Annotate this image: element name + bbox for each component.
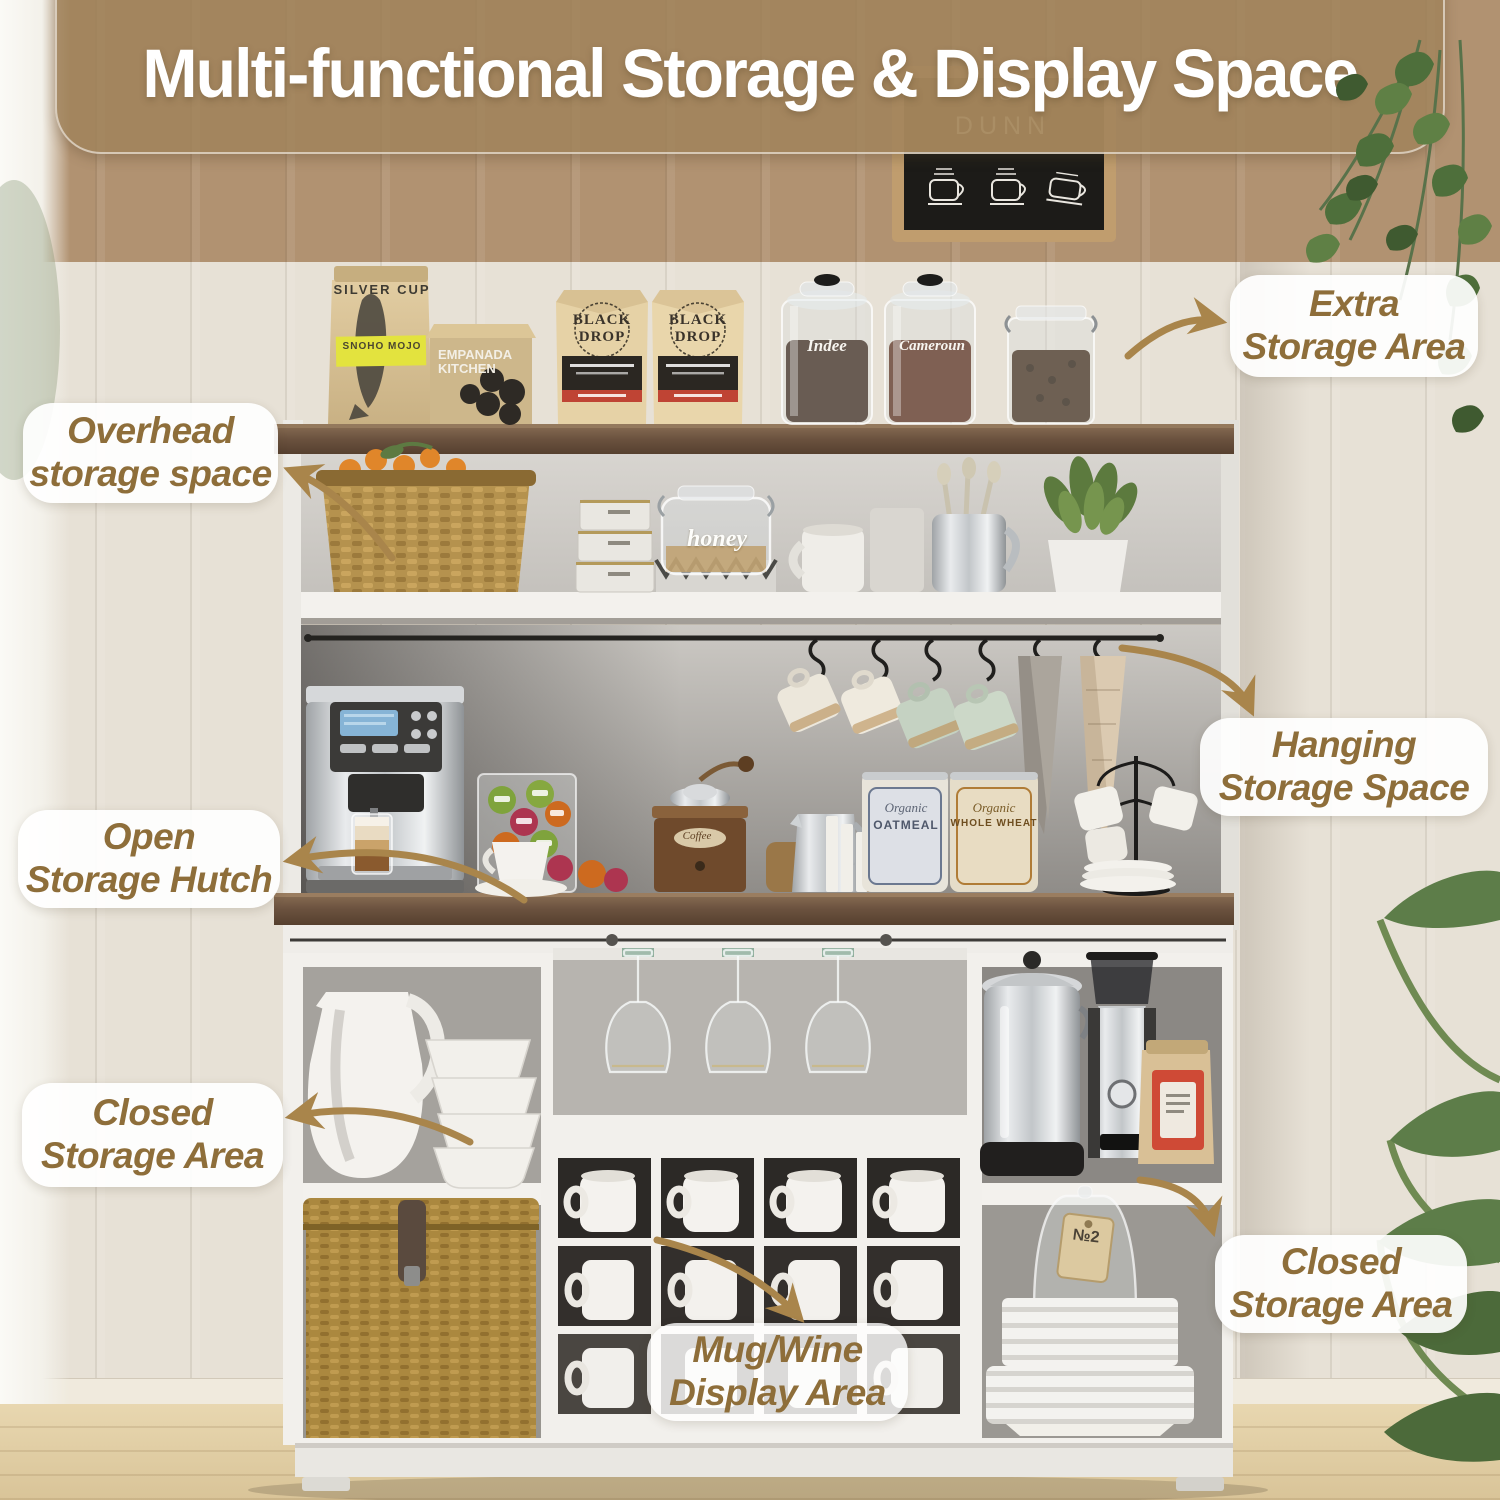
callout-overhead-line1: Overhead <box>67 410 234 453</box>
bowl-stack <box>426 1040 540 1188</box>
bean-jar-indee <box>782 274 872 424</box>
callout-mug-wine-line2: Display Area <box>669 1372 886 1415</box>
callout-extra-line1: Extra <box>1309 283 1399 326</box>
coffee-bag-black-drop-1 <box>556 290 648 424</box>
callout-closed-right-line1: Closed <box>1281 1241 1401 1284</box>
hanging-plant <box>1210 20 1500 450</box>
cloche-tag <box>1057 1213 1114 1283</box>
top-wood-shelf <box>274 424 1234 454</box>
callout-mug-wine-display: Mug/Wine Display Area <box>647 1323 908 1421</box>
bean-jar-cameroun <box>885 274 975 424</box>
callout-mug-wine-line1: Mug/Wine <box>692 1329 862 1372</box>
callout-hanging-storage: Hanging Storage Space <box>1200 718 1488 816</box>
tall-cup <box>870 508 924 592</box>
callout-hanging-line2: Storage Space <box>1219 767 1470 810</box>
floor-plant <box>1378 871 1500 1462</box>
callout-open-hutch: Open Storage Hutch <box>18 810 280 908</box>
page-title: Multi-functional Storage & Display Space <box>142 34 1357 113</box>
callout-extra-line2: Storage Area <box>1243 326 1466 369</box>
callout-closed-left-line1: Closed <box>92 1092 212 1135</box>
callout-closed-storage-left: Closed Storage Area <box>22 1083 283 1187</box>
kraft-box <box>426 324 536 425</box>
clamp-jar-spices <box>1006 306 1096 424</box>
callout-closed-right-line2: Storage Area <box>1230 1284 1453 1327</box>
callout-closed-left-line2: Storage Area <box>41 1135 264 1178</box>
callout-open-line1: Open <box>103 816 196 859</box>
white-mug-shelf <box>793 524 864 592</box>
floor-shadow <box>248 1475 1268 1500</box>
loose-pod-1 <box>578 860 606 888</box>
saucer-stack <box>1080 860 1176 892</box>
canister-whole-wheat <box>950 772 1038 892</box>
middle-shelf <box>301 592 1221 625</box>
callout-open-line2: Storage Hutch <box>26 859 272 902</box>
counter-top <box>274 893 1234 925</box>
plates-upper <box>1002 1298 1178 1366</box>
callout-closed-storage-right: Closed Storage Area <box>1215 1235 1467 1333</box>
top-shelf-items <box>328 266 1096 425</box>
callout-overhead-line2: storage space <box>29 453 271 496</box>
wine-glass-rack <box>553 948 967 960</box>
coffee-bag-black-drop-2 <box>652 290 744 424</box>
coffee-bag-silver-cup <box>328 266 432 424</box>
wicker-chest <box>303 1198 539 1438</box>
callout-overhead-storage: Overhead storage space <box>23 403 278 503</box>
canister-oatmeal <box>862 772 948 892</box>
latte-glass <box>352 814 392 874</box>
arrow-extra-storage <box>1128 320 1218 356</box>
callout-hanging-line1: Hanging <box>1272 724 1416 767</box>
honey-jar <box>656 486 776 592</box>
product-scene: IS DUNN SILVER CUP SNOHO MOJO EMPANADAKI… <box>0 0 1500 1500</box>
coffee-urn <box>980 951 1089 1176</box>
callout-extra-storage: Extra Storage Area <box>1230 275 1478 377</box>
loose-pod-2 <box>604 868 628 892</box>
stacked-tins <box>576 500 654 592</box>
plates-lower <box>986 1366 1194 1424</box>
coffee-bag-red-label <box>1138 1040 1214 1164</box>
hutch-side-left <box>283 420 303 930</box>
